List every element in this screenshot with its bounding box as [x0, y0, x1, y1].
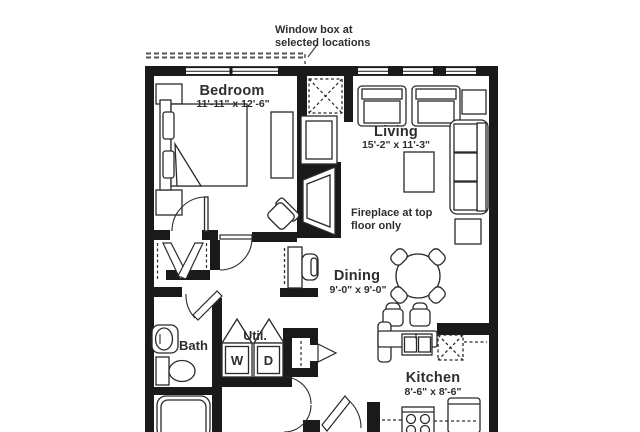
coat-closet: [301, 341, 336, 366]
dining-label: Dining: [334, 268, 380, 284]
fireplace-note-line1: Fireplace at top: [351, 207, 433, 219]
desk: [288, 247, 302, 288]
tv-niche: [301, 116, 337, 164]
window-box-dashed-line: [146, 54, 305, 65]
corner-chair: [265, 197, 300, 232]
living-window-1: [358, 67, 388, 75]
end-table: [455, 219, 481, 244]
refrigerator: [448, 398, 480, 432]
kitchen-label: Kitchen: [406, 370, 461, 386]
pillow: [163, 151, 174, 178]
living-label: Living: [374, 124, 418, 140]
bedroom-dims: 11'-11" x 12'-6": [196, 98, 269, 110]
living-window-2: [403, 67, 433, 75]
fireplace-note-line2: floor only: [351, 220, 402, 232]
armchair: [358, 86, 406, 126]
kitchen-fixtures: [378, 303, 487, 432]
entry-door-leaf: [322, 396, 350, 431]
bar-stool: [410, 303, 430, 326]
dishwasher: [438, 335, 487, 360]
coffee-table: [404, 152, 434, 192]
dryer-letter: D: [264, 353, 273, 368]
sofa: [450, 120, 488, 214]
coat-closet-door: [318, 344, 336, 362]
kitchen-sink: [402, 333, 432, 355]
floor-plan: Window box at selected locations Bedroom…: [0, 0, 640, 432]
living-dims: 15'-2" x 11'-3": [362, 139, 430, 151]
hall-dining-door: [220, 235, 252, 270]
utility-area: [222, 319, 284, 377]
dresser: [271, 112, 293, 178]
dining-dims: 9'-0" x 9'-0": [330, 284, 387, 296]
pillow: [163, 112, 174, 139]
living-window-3: [446, 67, 476, 75]
washer-letter: W: [231, 353, 244, 368]
range: [382, 407, 448, 432]
armchair: [412, 86, 460, 126]
toilet-tank: [156, 357, 169, 385]
shaft-box: [309, 79, 342, 113]
floor-plan-drawing: Window box at selected locations Bedroom…: [0, 0, 640, 432]
entry-doors: [284, 377, 361, 432]
kitchen-dims: 8'-6" x 8'-6": [405, 386, 462, 398]
util-label: Util.: [243, 329, 267, 343]
window-box-note-line2: selected locations: [275, 37, 370, 49]
bath-label: Bath: [179, 338, 208, 353]
toilet-bowl: [169, 361, 195, 382]
bedroom-label: Bedroom: [199, 83, 264, 99]
window-box-note-line1: Window box at: [275, 24, 353, 36]
corner-table: [462, 90, 486, 114]
bedroom-window: [186, 67, 278, 75]
